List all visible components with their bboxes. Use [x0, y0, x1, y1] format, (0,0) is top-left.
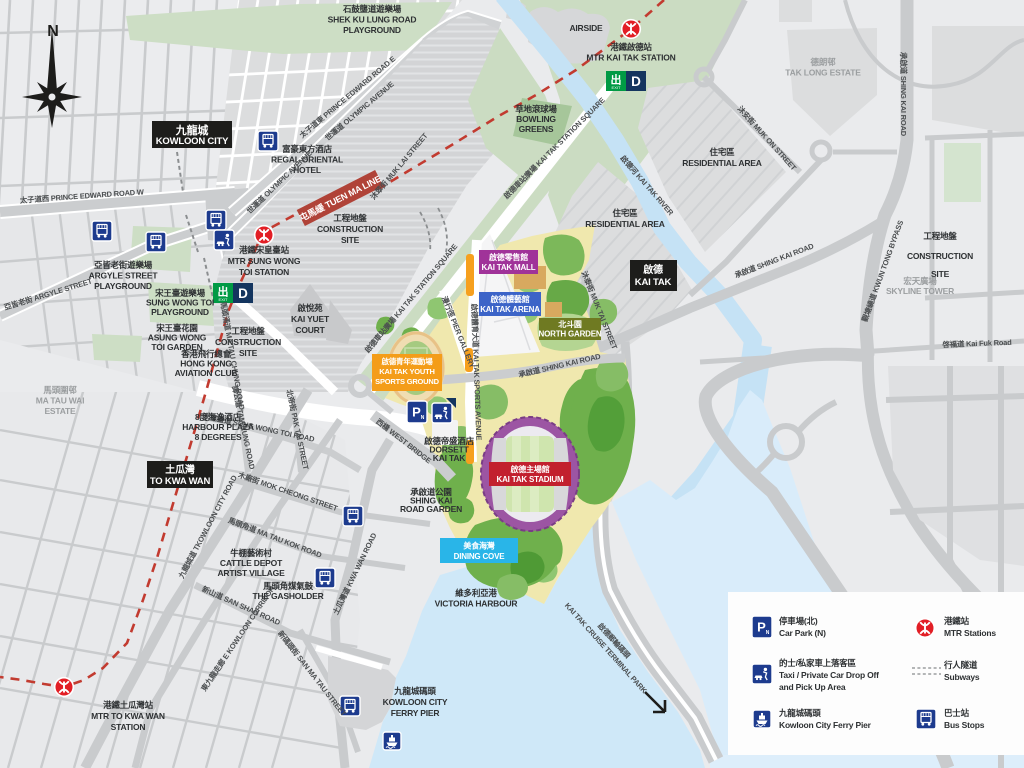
svg-text:美食海灣: 美食海灣 [463, 541, 494, 551]
svg-text:MA TAU WAI: MA TAU WAI [36, 396, 85, 406]
svg-text:停車場(北): 停車場(北) [779, 616, 818, 626]
svg-text:N: N [47, 23, 59, 40]
svg-text:宏天廣場: 宏天廣場 [903, 276, 937, 286]
svg-text:SPORTS GROUND: SPORTS GROUND [375, 377, 439, 386]
svg-text:ASUNG WONG: ASUNG WONG [148, 333, 207, 343]
svg-text:MTR Stations: MTR Stations [944, 628, 996, 638]
svg-text:AIRSIDE: AIRSIDE [569, 23, 603, 33]
svg-text:Taxi / Private Car Drop Off: Taxi / Private Car Drop Off [779, 670, 879, 680]
svg-text:住宅區: 住宅區 [613, 208, 639, 218]
svg-text:工程地盤: 工程地盤 [923, 231, 957, 241]
svg-text:KOWLOON CITY: KOWLOON CITY [383, 697, 448, 707]
svg-text:THE GASHOLDER: THE GASHOLDER [252, 591, 323, 601]
svg-text:ESTATE: ESTATE [44, 406, 76, 416]
svg-text:的士/私家車上落客區: 的士/私家車上落客區 [779, 658, 857, 668]
svg-text:CATTLE DEPOT: CATTLE DEPOT [220, 558, 283, 568]
svg-text:港鐵土瓜灣站: 港鐵土瓜灣站 [103, 700, 154, 710]
svg-text:Bus Stops: Bus Stops [944, 720, 985, 730]
svg-text:九龍城碼頭: 九龍城碼頭 [778, 708, 821, 718]
svg-text:ARTIST VILLAGE: ARTIST VILLAGE [217, 568, 285, 578]
svg-text:工程地盤: 工程地盤 [231, 326, 265, 336]
svg-text:巴士站: 巴士站 [944, 708, 970, 718]
svg-text:啟德零售館: 啟德零售館 [489, 252, 528, 262]
svg-text:土瓜灣: 土瓜灣 [165, 463, 195, 476]
svg-text:Car Park (N): Car Park (N) [779, 628, 826, 638]
svg-text:SUNG WONG TOI: SUNG WONG TOI [146, 298, 214, 308]
svg-text:牛棚藝術村: 牛棚藝術村 [230, 548, 272, 558]
svg-text:CONSTRUCTION: CONSTRUCTION [317, 224, 383, 234]
svg-text:九龍城碼頭: 九龍城碼頭 [393, 686, 436, 696]
svg-text:CONSTRUCTION: CONSTRUCTION [215, 337, 281, 347]
svg-text:石鼓壟道遊樂場: 石鼓壟道遊樂場 [342, 4, 402, 14]
svg-text:GREENS: GREENS [519, 124, 554, 134]
svg-text:ROAD GARDEN: ROAD GARDEN [400, 504, 462, 514]
svg-text:亞皆老街遊樂場: 亞皆老街遊樂場 [94, 260, 153, 270]
svg-text:KAI TAK ARENA: KAI TAK ARENA [480, 305, 540, 314]
svg-text:SHEK KU LUNG ROAD: SHEK KU LUNG ROAD [328, 15, 417, 25]
svg-text:香港飛行總會: 香港飛行總會 [180, 349, 232, 359]
svg-text:北斗園: 北斗園 [558, 319, 582, 329]
svg-text:啟德: 啟德 [643, 263, 663, 276]
svg-text:RESIDENTIAL AREA: RESIDENTIAL AREA [585, 219, 665, 229]
svg-text:HONG KONG: HONG KONG [180, 359, 232, 369]
svg-text:行人隧道: 行人隧道 [943, 660, 978, 670]
svg-text:工程地盤: 工程地盤 [333, 213, 367, 223]
svg-text:SITE: SITE [239, 348, 258, 358]
svg-text:PLAYGROUND: PLAYGROUND [94, 281, 152, 291]
svg-text:啟德體藝館: 啟德體藝館 [491, 294, 530, 304]
svg-text:CONSTRUCTION: CONSTRUCTION [907, 251, 973, 261]
svg-text:BOWLING: BOWLING [516, 114, 556, 124]
svg-text:PLAYGROUND: PLAYGROUND [151, 307, 209, 317]
svg-text:Kowloon City Ferry Pier: Kowloon City Ferry Pier [779, 720, 872, 730]
svg-text:KAI TAK STADIUM: KAI TAK STADIUM [497, 475, 564, 484]
svg-text:啟德青年運動場: 啟德青年運動場 [381, 356, 433, 366]
svg-text:STATION: STATION [111, 722, 146, 732]
svg-text:SITE: SITE [341, 235, 360, 245]
svg-text:草地滾球場: 草地滾球場 [515, 104, 557, 114]
svg-text:TAK LONG ESTATE: TAK LONG ESTATE [785, 68, 861, 78]
svg-text:住宅區: 住宅區 [710, 147, 736, 157]
svg-text:DINING COVE: DINING COVE [454, 552, 506, 561]
svg-text:九龍城: 九龍城 [175, 123, 209, 137]
svg-text:馬頭圍邨: 馬頭圍邨 [43, 385, 77, 395]
svg-text:港鐵宋皇臺站: 港鐵宋皇臺站 [239, 245, 290, 255]
svg-text:KAI TAK: KAI TAK [433, 453, 466, 463]
svg-text:VICTORIA HARBOUR: VICTORIA HARBOUR [435, 599, 518, 609]
svg-text:RESIDENTIAL AREA: RESIDENTIAL AREA [682, 158, 762, 168]
svg-text:MTR KAI TAK STATION: MTR KAI TAK STATION [586, 53, 675, 63]
svg-text:TOI STATION: TOI STATION [239, 267, 289, 277]
svg-text:Subways: Subways [944, 672, 980, 682]
svg-text:MTR SUNG WONG: MTR SUNG WONG [228, 256, 301, 266]
svg-text:8度海逸酒店: 8度海逸酒店 [195, 412, 242, 422]
svg-text:TO KWA WAN: TO KWA WAN [150, 476, 211, 487]
svg-text:MTR TO KWA WAN: MTR TO KWA WAN [91, 711, 165, 721]
svg-text:and Pick Up Area: and Pick Up Area [779, 682, 846, 692]
svg-text:COURT: COURT [295, 325, 325, 335]
svg-text:啟悅苑: 啟悅苑 [298, 303, 324, 313]
svg-text:SKYLINE TOWER: SKYLINE TOWER [886, 286, 954, 296]
svg-text:KAI TAK YOUTH: KAI TAK YOUTH [379, 367, 434, 376]
svg-text:8 DEGREES: 8 DEGREES [195, 432, 242, 442]
svg-text:KAI YUET: KAI YUET [291, 314, 330, 324]
svg-text:港鐵啟德站: 港鐵啟德站 [610, 42, 652, 52]
svg-text:承啟道 SHING KAI ROAD: 承啟道 SHING KAI ROAD [899, 52, 909, 137]
svg-text:港鐵站: 港鐵站 [944, 616, 970, 626]
svg-text:PLAYGROUND: PLAYGROUND [343, 25, 401, 35]
svg-text:KAI TAK: KAI TAK [635, 277, 672, 288]
svg-text:KOWLOON CITY: KOWLOON CITY [156, 136, 229, 147]
svg-text:宋王臺遊樂場: 宋王臺遊樂場 [154, 288, 206, 298]
svg-text:AVIATION CLUB: AVIATION CLUB [175, 368, 238, 378]
svg-text:啟德主場館: 啟德主場館 [511, 464, 550, 474]
svg-text:馬頭角煤氣鼓: 馬頭角煤氣鼓 [263, 581, 314, 591]
svg-text:維多利亞港: 維多利亞港 [455, 588, 497, 598]
svg-text:宋王臺花園: 宋王臺花園 [155, 323, 198, 333]
svg-text:FERRY PIER: FERRY PIER [391, 708, 440, 718]
svg-text:德朗邨: 德朗邨 [811, 57, 837, 67]
svg-text:NORTH GARDEN: NORTH GARDEN [539, 330, 602, 339]
svg-text:ARGYLE STREET: ARGYLE STREET [89, 271, 159, 281]
svg-text:KAI TAK MALL: KAI TAK MALL [482, 263, 536, 272]
